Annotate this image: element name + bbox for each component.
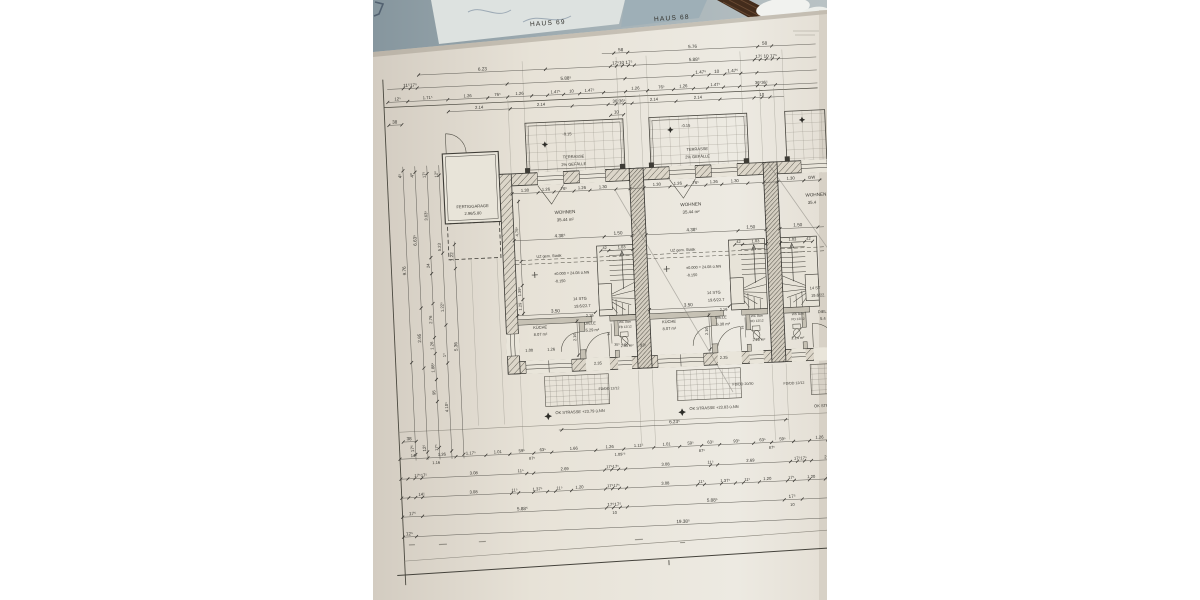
room-kueche-left: KÜCHE [533,324,548,330]
dim-label: 2.16 [586,313,595,318]
dim-label: 87⁵ [529,455,536,460]
dim-label: 5.36 [453,342,458,352]
dim-label: 4.75⁵ [514,227,519,237]
dim-label: 12⁵ [422,444,427,451]
terrace-right [785,110,827,162]
dim-label: 1.66 [570,446,579,451]
dim-label: 1.30 [599,184,608,189]
terrace-mid-level: -0.15 [681,123,691,128]
dim-label: 2.16 [720,307,729,312]
dim-label: 2.35 [594,360,603,365]
dim-label: 2.16 [704,326,709,335]
dim-label: 35⁵ [614,343,620,347]
dim-label: 17⁵17⁵ [606,464,619,470]
dim-label: 4⁰ [409,173,414,178]
dim-label: 1.30 [521,187,530,192]
stair-note-mid-1: 14 STG [707,290,721,296]
dim-label: 63⁵ [759,437,766,442]
room-wohnen-left-area: 35.44 m² [557,217,575,223]
room-diele-mid: DIELE [715,314,727,320]
wc-mid-label: WC 8cm [751,314,764,319]
wc-left-area: 2.35 m² [621,343,635,348]
dim-label: 2.69 [746,458,755,463]
room-diele-right-area: 5.4 [820,316,827,321]
dim-label: 1.50 [746,224,756,229]
dim-label: 1.26 [429,341,434,350]
dim-label: 17⁵ [409,511,416,516]
dim-label: 1.09⁷⁵ [614,451,625,457]
dim-label: 1.01 [494,449,503,454]
garage-size: 2.96/5.80 [464,210,482,216]
dim-label: 76⁵ [692,180,699,185]
dim-label: 3.63⁵ [423,210,428,220]
room-diele-left: DIELE [584,320,596,326]
photo-canvas: HAUS 69 HAUS 68 [0,0,1200,600]
dim-label: 1.47⁵ [550,89,560,94]
dim-label: 1.22 [449,252,454,262]
dim-label: 17⁵ [421,171,426,178]
street-level-right: OK STRASSE [814,402,827,408]
dim-label: 5.76 [688,44,698,49]
dim-label: GW [808,175,815,180]
dim-label: 5.88⁵ [707,497,718,502]
dim-label: 74 [607,332,611,336]
room-kueche-mid: KÜCHE [662,319,677,325]
dim-label: 11⁵ [518,468,525,473]
dim-label: 1.00 [525,347,534,352]
dim-label: 63⁵ [539,447,546,452]
dim-label: 1.26 [815,434,824,439]
dim-label: 38 [392,119,398,124]
dim-label: 1.47⁵ [710,82,720,87]
dim-label: 36⁵36⁵ [755,80,768,86]
dim-label: 12⁰ [433,171,438,178]
wc-right-fb: FD 12/12 [791,317,805,322]
dim-label: 5.88⁵ [517,506,528,511]
dim-label: 1.88⁵ [430,362,435,372]
dim-label: 93⁵ [733,438,740,443]
dim-label: 1.26 [547,346,556,351]
dim-label: 5.88⁵ [689,57,700,62]
dim-label: 74 [741,325,745,329]
dim-label: 76⁵ [561,186,568,191]
dim-label: 2.14 [694,95,703,100]
stair-note-right-1: 14 ST [810,285,821,291]
dim-label: 1.26 [710,179,719,184]
dim-label: 11⁵ [707,459,714,464]
dim-label: 1.16 [432,460,441,465]
dim-label: 38 [406,436,412,441]
dim-label: 17⁵ [788,494,795,499]
dim-label: 1.26 [515,91,524,96]
dim-label: 63⁵ [707,439,714,444]
wc-right-label: WS 8cm [792,312,805,317]
dim-label: 3.50 [551,308,561,313]
dim-label: 1.03 [788,236,797,241]
room-diele-mid-area: 5.30 m² [716,321,730,327]
dim-label: 59⁵ [779,436,786,441]
dim-label: 1.29 [517,302,522,311]
dim-label: 3.08 [470,470,479,475]
floorplan-svg: HAUS 69 HAUS 68 [373,0,827,600]
terrace-left-level: -0.15 [562,131,572,136]
room-kueche-mid-area: 8.07 m² [662,326,676,332]
dim-label: 17⁵17⁵ [794,455,807,461]
dim-label: 59⁵ [687,440,694,445]
dim-label: 1.26 [578,185,587,190]
dim-label: 1.20 [807,474,816,479]
dim-label: 17⁵17⁵ [414,472,427,478]
dim-label: 17⁵ [410,445,415,452]
dim-label: 1.26 [542,187,551,192]
dim-label: 3.08 [469,489,478,494]
dim-label: 6.23 [478,66,488,71]
dim-label: 1.03 [751,238,760,243]
dim-label: 1.26 [631,85,640,90]
dim-label: 1.37⁵ [720,478,730,483]
dim-label: 6.23⁵ [669,419,680,424]
dim-label: 1.11⁵ [634,443,644,448]
dim-label: 1.17⁵ [466,450,476,455]
room-wohnen-left: WOHNEN [554,209,575,215]
room-wohnen-right-area: 35.4 [808,200,817,205]
dim-label: 2.35 [720,355,729,360]
dim-label: 3.50 [684,302,694,307]
dim-label: 4.10⁵ [444,402,449,412]
dim-label: 17⁵17⁵ [607,502,621,508]
dim-label: 9.76 [402,266,407,276]
room-wohnen-mid: WOHNEN [680,201,701,207]
level-minus-mid: -0.150 [686,273,697,277]
dim-label: 3.08 [661,480,670,485]
stair-note-mid-2: 19.6/22.7 [708,297,726,303]
terrace-mid [649,113,749,167]
terrace-left-label: TERRASSE [563,154,585,160]
dim-label: 59⁵ [518,448,525,453]
room-diele-left-area: 5.29 m² [585,327,599,333]
dim-label: 5.23 [437,242,442,251]
dim-label: 1.26 [679,83,688,88]
wc-mid-area: 2.28 m² [752,338,766,343]
stair-note-right-2: 19.6/22. [811,292,826,298]
dim-label: 1.47⁵ [727,68,738,73]
dim-label: 1.30 [731,178,740,183]
dim-label: 87⁵ [769,445,776,450]
dim-label: 1.26 [463,93,472,98]
dim-label: 17⁵17⁵ [607,483,620,489]
dim-label: 1.71⁵ [423,95,433,100]
dim-label: 5.88⁵ [560,75,571,80]
dim-label: 1.47⁵ [695,69,706,74]
dim-label: 3.08 [661,461,670,466]
dim-label: 11⁵ [698,479,705,484]
dim-label: 1.50 [613,230,623,235]
dim-label: 4.38⁵ [555,233,566,238]
dim-label: 4.38⁵ [686,227,697,232]
dim-label: 1.26 [674,181,683,186]
dim-label: 1.37⁵ [532,486,542,491]
dim-label: 1.20 [575,484,584,489]
wc-right-area: 2.14 m² [791,336,805,341]
dim-label: 2.69 [824,454,827,459]
dim-label: 2.14 [650,97,659,102]
dim-label: 4⁵ [397,174,402,179]
dim-label: 1⁵ [442,353,447,358]
dim-label: 1.39⁵ [517,286,522,296]
dim-row: 2.16 [720,307,729,312]
dim-label: 58 [618,47,624,52]
dim-label: 6.63⁵ [412,235,417,246]
room-diele-right: DIELE [818,309,827,315]
dim-label: 10 [714,69,720,74]
dim-label: 1.30 [653,181,662,186]
wc-left-label: WC 8cm [619,320,632,325]
dim-label: 11⁵ [826,473,827,478]
dim-label: 58 [762,41,768,46]
dim-label: 2.95 [417,333,422,343]
dim-label: 11⁵ [744,477,751,482]
dim-label: 1.30 [786,175,795,180]
dim-label: 2.14 [537,102,546,107]
wc-left-fb: FB 12/12 [619,325,632,330]
dim-label: 1.26 [605,444,614,449]
dim-label: 1.20 [763,476,772,481]
dim-label: 17⁵ [788,475,795,480]
dim-label: 1.50 [793,222,803,227]
dim-label: 17⁵ 10 17⁵ [755,53,777,59]
dim-label: 10 [614,109,620,114]
terrace-mid-label: TERRASSE [686,146,708,152]
dim-label: 1.01 [662,441,671,446]
dim-label: 1.47⁵ [584,87,594,92]
room-kueche-left-area: 8.07 m² [534,331,548,337]
dim-row: 2.16 [586,313,595,318]
dim-label: 17⁵ [434,444,439,451]
stair-note-left-2: 19.6/22.7 [574,303,592,309]
dim-label: 14⁵ [418,492,425,497]
dim-label: 19.38⁵ [676,519,690,525]
level-minus-left: -0.150 [555,279,566,283]
dim-label: 12⁵ [406,531,413,536]
dim-label: 76⁵ [494,92,501,97]
room-wohnen-mid-area: 35.44 m² [683,209,701,215]
dim-label: 93⁵ [640,342,647,347]
sheet-edge-shadow [819,10,827,600]
dim-label: 11⁵17⁵ [403,82,417,88]
dim-label: 11⁵ [511,487,518,492]
dim-label: 2.14 [475,104,484,109]
dim-label: 17⁵10 17⁵ [612,60,633,66]
dim-label: 1.22⁵ [439,302,444,312]
dim-label: 2.16 [572,332,577,341]
floorplan-photo: HAUS 69 HAUS 68 [373,0,827,600]
stair-note-left-1: 14 STG [573,296,587,302]
room-wohnen-right: WOHNEN [805,192,826,198]
dim-label: 1.26 [438,452,447,457]
dim-label: 87⁵ [699,448,706,453]
dim-label: 1.03 [618,244,627,249]
dim-label: 12⁵ [394,96,401,101]
dim-label: 11⁵ [556,485,563,490]
wc-mid-fb: FD 12/12 [750,319,764,324]
dim-label: 76⁵ [658,84,665,89]
dim-label: 2.69 [560,466,569,471]
dim-label: 36⁵36⁵ [612,98,625,104]
dim-label: 2.76 [428,315,433,324]
